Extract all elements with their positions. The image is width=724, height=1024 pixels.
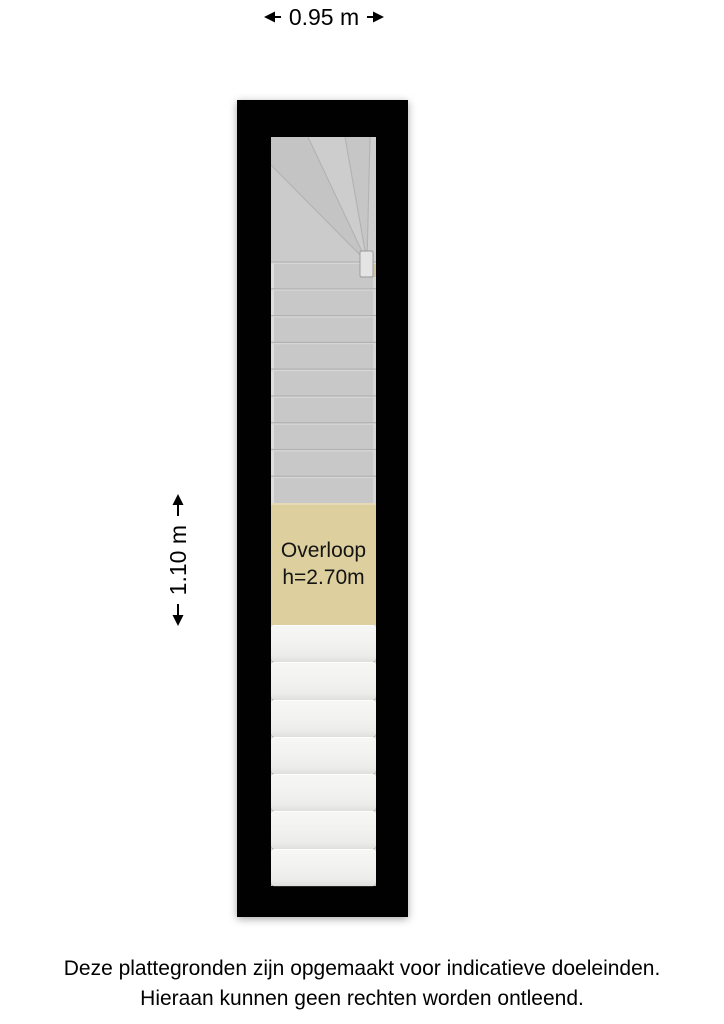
disclaimer-line-1: Deze plattegronden zijn opgemaakt voor i… (0, 954, 724, 984)
arrow-down-icon (172, 604, 184, 626)
arrow-up-icon (172, 494, 184, 516)
room-height-label: h=2.70m (282, 564, 364, 591)
landing-overloop: Overloop h=2.70m (271, 503, 376, 625)
width-dimension-label: 0.95 m (289, 3, 359, 31)
arrow-left-icon (264, 11, 281, 23)
height-dimension: 1.10 m (160, 494, 196, 626)
lower-step (271, 625, 376, 662)
lower-staircase (271, 625, 376, 886)
lower-step (271, 700, 376, 737)
disclaimer: Deze plattegronden zijn opgemaakt voor i… (0, 954, 724, 1014)
stairwell-interior: Overloop h=2.70m (271, 137, 376, 886)
lower-step (271, 849, 376, 886)
height-dimension-label: 1.10 m (165, 525, 192, 595)
upper-staircase (271, 137, 376, 503)
newel-post (360, 251, 373, 277)
floorplan-page: 0.95 m 1.10 m (0, 0, 724, 1024)
lower-step (271, 737, 376, 774)
lower-step (271, 774, 376, 811)
lower-step (271, 811, 376, 848)
lower-step (271, 662, 376, 699)
floorplan-outline: Overloop h=2.70m (237, 100, 408, 917)
width-dimension: 0.95 m (264, 3, 384, 31)
room-label: Overloop (281, 537, 366, 564)
winder-steps (271, 137, 376, 262)
arrow-right-icon (367, 11, 384, 23)
disclaimer-line-2: Hieraan kunnen geen rechten worden ontle… (0, 984, 724, 1014)
